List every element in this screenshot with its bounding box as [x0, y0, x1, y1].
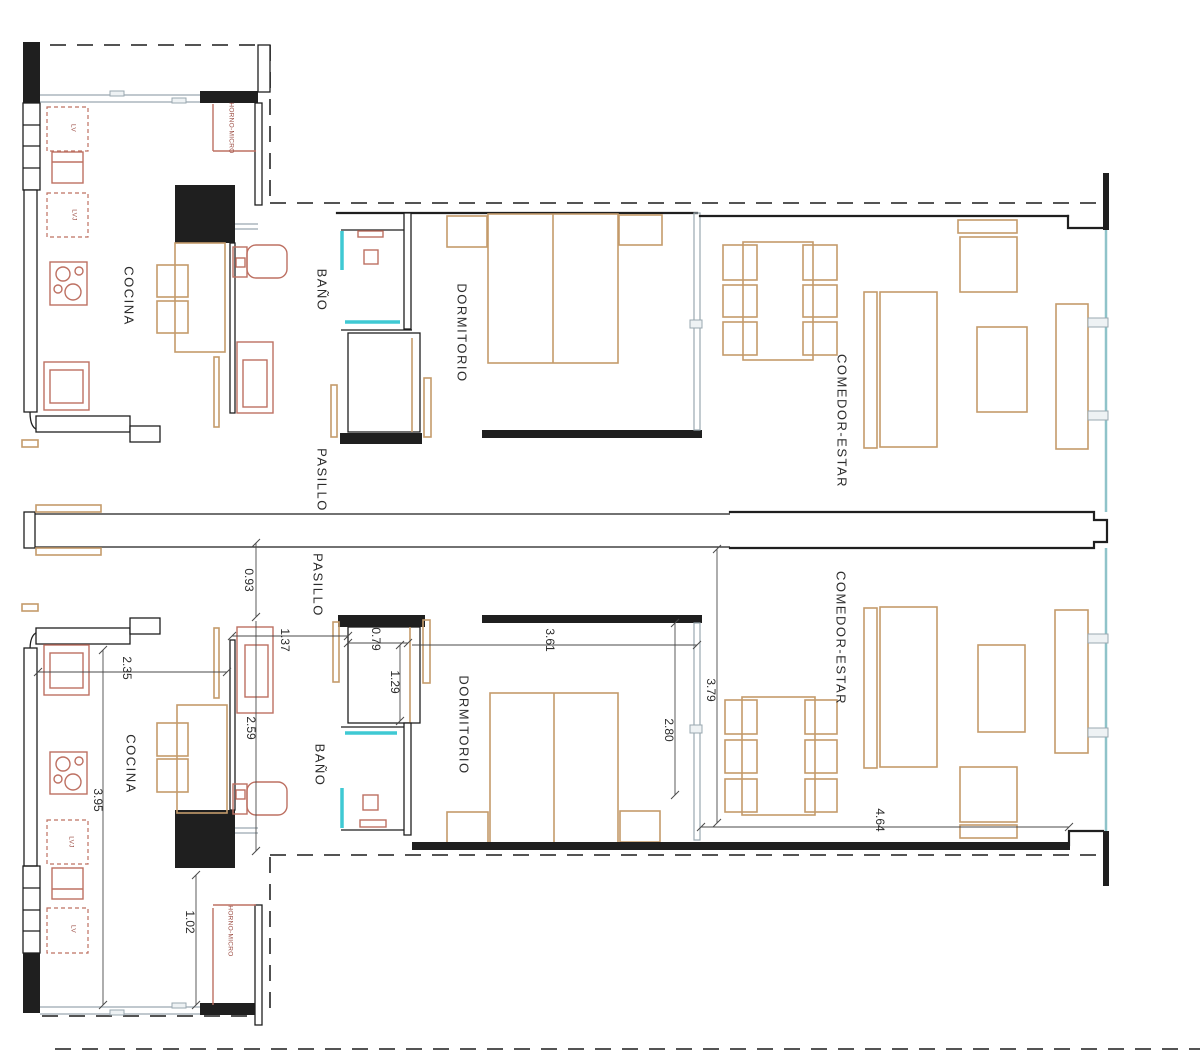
- washer: [47, 193, 88, 237]
- door-leaf: [36, 548, 101, 555]
- stool: [157, 265, 188, 297]
- dim-hall-length: 2.59: [244, 716, 258, 740]
- oven-micro-column: [213, 905, 256, 1005]
- toilet: [233, 782, 287, 815]
- room-label-pasillo-top: PASILLO: [315, 448, 330, 512]
- dim-closet-depth: 1.29: [388, 670, 402, 694]
- appliance-label-lvj-bottom: LVJ: [67, 836, 74, 848]
- washbasin: [363, 795, 378, 810]
- laundry-cabinet: [237, 627, 273, 713]
- tv-unit: [1056, 304, 1108, 449]
- stool: [157, 723, 188, 756]
- dim-bedroom-depth: 2.80: [662, 718, 676, 742]
- dim-corridor-width: 0.93: [242, 568, 256, 592]
- bottom-apartment: [22, 548, 1109, 1025]
- dim-entry-width: 1.37: [278, 628, 292, 652]
- dim-bedroom-width: 3.61: [543, 628, 557, 652]
- kitchen-island: [157, 243, 225, 352]
- nightstand: [447, 812, 488, 843]
- bottom-living-room: [412, 548, 1109, 886]
- dim-closet-width: 0.79: [369, 627, 383, 651]
- appliance-label-horno-top: HORNO-MICRO: [227, 102, 234, 153]
- washbasin: [364, 250, 378, 264]
- toilet: [233, 245, 287, 278]
- bottom-kitchen-walls: [22, 604, 262, 1025]
- bottom-kitchen-fixtures: [44, 627, 287, 1005]
- dining-table: [725, 697, 837, 815]
- chair: [805, 779, 837, 812]
- stool: [157, 301, 188, 333]
- dim-kitchen-length: 3.95: [91, 788, 105, 812]
- room-label-cocina-top: COCINA: [122, 266, 137, 326]
- coffee-table: [977, 327, 1027, 412]
- room-label-pasillo-bottom: PASILLO: [311, 553, 326, 617]
- top-living-room: [700, 173, 1109, 512]
- appliance-label-horno-bottom: HORNO-MICRO: [226, 905, 233, 956]
- dishwasher: [47, 107, 88, 151]
- dim-living-depth: 3.79: [704, 678, 718, 702]
- sofa: [864, 292, 937, 448]
- tv-unit: [1055, 610, 1108, 753]
- hob: [50, 752, 87, 794]
- floor-plan-canvas: COCINA BAÑO DORMITORIO PASILLO COMEDOR-E…: [0, 0, 1200, 1053]
- dim-kitchen-width: 2.35: [120, 656, 134, 680]
- coffee-table: [978, 645, 1025, 732]
- dimension-labels: 0.93 1.37 2.35 2.59 0.79 1.29 3.61 2.80 …: [91, 568, 887, 934]
- top-bathroom: [337, 213, 697, 330]
- nightstand: [447, 216, 487, 247]
- room-label-bano-bottom: BAÑO: [313, 744, 328, 787]
- chair: [803, 322, 837, 355]
- armchair: [958, 220, 1017, 292]
- chair: [725, 740, 757, 773]
- dishwasher: [47, 908, 88, 953]
- nightstand: [620, 811, 660, 842]
- nightstand: [619, 215, 662, 245]
- room-label-bano-top: BAÑO: [315, 269, 330, 312]
- top-apartment: [22, 42, 1109, 512]
- top-bedroom: [447, 213, 702, 438]
- bottom-bathroom: [341, 723, 411, 835]
- kitchen-sink: [44, 645, 89, 695]
- chair: [723, 285, 757, 317]
- dim-kitchen-opening: 1.02: [183, 910, 197, 934]
- room-label-cocina-bottom: COCINA: [124, 734, 139, 794]
- dim-living-width: 4.64: [873, 808, 887, 832]
- shared-corridor: [24, 505, 1107, 555]
- double-bed: [447, 693, 660, 843]
- door-leaf: [36, 505, 101, 512]
- stool: [157, 759, 188, 792]
- chair: [725, 700, 757, 734]
- room-label-comedor-top: COMEDOR-ESTAR: [835, 354, 850, 488]
- chair: [723, 245, 757, 280]
- kitchen-sink: [44, 362, 89, 410]
- dining-table: [723, 242, 837, 360]
- top-kitchen-fixtures: [44, 104, 287, 413]
- chair: [803, 285, 837, 317]
- chair: [805, 740, 837, 773]
- appliance-label-lv-top: LV: [69, 124, 76, 132]
- double-bed: [447, 214, 662, 363]
- appliance-label-lv-bottom: LV: [69, 925, 76, 933]
- room-label-comedor-bottom: COMEDOR-ESTAR: [834, 571, 849, 705]
- top-closet: [331, 333, 431, 444]
- hob: [50, 262, 87, 305]
- chair: [805, 700, 837, 734]
- chair: [803, 245, 837, 280]
- appliance-label-lvj-top: LVJ: [70, 209, 77, 221]
- chair: [725, 779, 757, 812]
- chair: [723, 322, 757, 355]
- sofa: [864, 607, 937, 768]
- room-label-dormitorio-top: DORMITORIO: [455, 283, 470, 382]
- room-label-dormitorio-bottom: DORMITORIO: [457, 675, 472, 774]
- kitchen-island: [157, 705, 227, 813]
- laundry-cabinet: [237, 342, 273, 413]
- floor-plan-drawing: COCINA BAÑO DORMITORIO PASILLO COMEDOR-E…: [0, 0, 1200, 1053]
